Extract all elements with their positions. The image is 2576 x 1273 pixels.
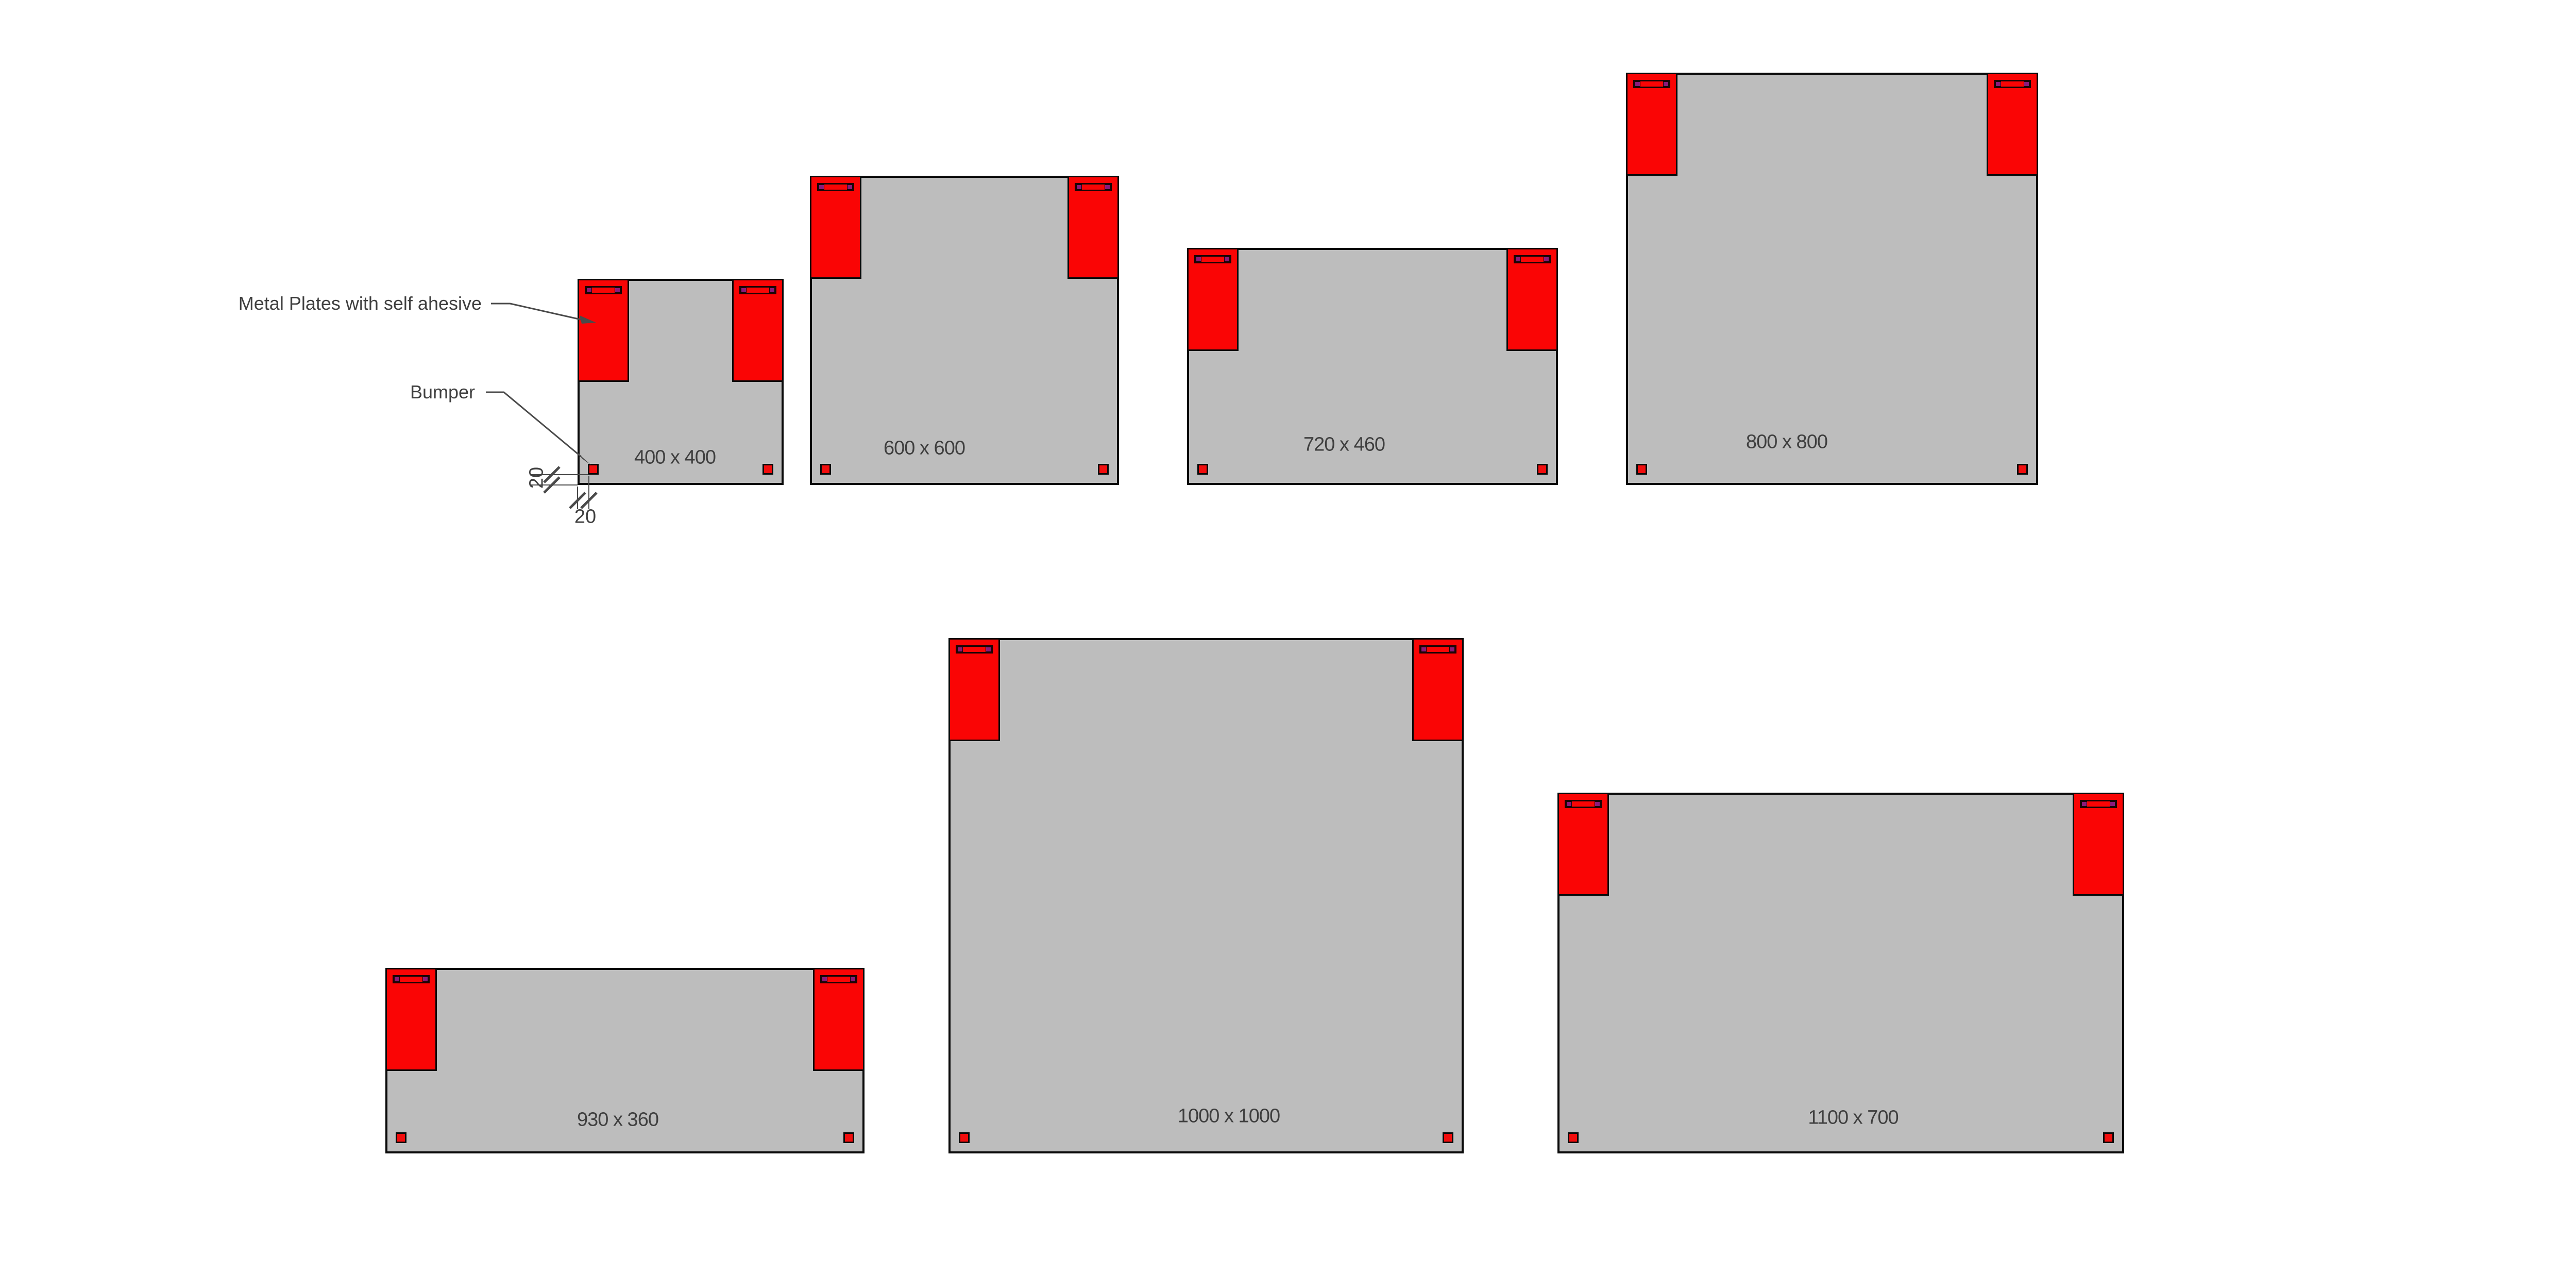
metal-plate-top-right (813, 968, 865, 1071)
slot-end-cap-right (2110, 801, 2115, 807)
plate-slot (820, 975, 857, 983)
panel-size-label: 1100 x 700 (1808, 1107, 1898, 1129)
slot-end-cap-right (986, 647, 991, 652)
slot-end-cap-left (1635, 81, 1640, 87)
slot-end-cap-left (1995, 81, 2001, 87)
metal-plates-leader-line (491, 304, 583, 320)
bumper-bottom-left (1568, 1132, 1579, 1143)
slot-end-cap-left (2081, 801, 2087, 807)
plate-slot (1514, 255, 1551, 263)
metal-plate-top-left (1626, 73, 1677, 176)
bumper-bottom-right (762, 464, 773, 475)
plate-slot (956, 645, 993, 654)
slot-end-cap-left (819, 185, 824, 190)
bumper-bottom-right (1443, 1132, 1453, 1143)
panel-size-label: 1000 x 1000 (1178, 1105, 1280, 1128)
plate-slot (1194, 255, 1231, 263)
slot-end-cap-right (847, 185, 853, 190)
slot-end-cap-right (422, 977, 428, 982)
bumper-bottom-left (396, 1132, 406, 1143)
bumper-bottom-left (1636, 464, 1647, 475)
slot-end-cap-left (586, 288, 592, 293)
plate-slot (1419, 645, 1456, 654)
slot-end-cap-right (1663, 81, 1669, 87)
panel-size-label: 800 x 800 (1746, 431, 1827, 454)
plate-slot (1075, 183, 1112, 191)
metal-plates-callout-label: Metal Plates with self ahesive (239, 293, 482, 314)
plate-slot (2080, 800, 2117, 808)
metal-plate-top-right (2073, 793, 2124, 896)
panel-size-label: 720 x 460 (1303, 434, 1385, 456)
metal-plate-top-left (1557, 793, 1609, 896)
slot-end-cap-left (741, 288, 747, 293)
slot-end-cap-left (1566, 801, 1572, 807)
plate-slot (1565, 800, 1602, 808)
slot-end-cap-left (394, 977, 400, 982)
panel-size-label: 600 x 600 (884, 438, 965, 460)
slot-end-cap-right (1105, 185, 1110, 190)
metal-plate-top-left (1187, 248, 1239, 351)
bumper-bottom-right (2017, 464, 2028, 475)
slot-end-cap-left (1515, 257, 1521, 262)
slot-end-cap-right (769, 288, 775, 293)
slot-end-cap-left (957, 647, 963, 652)
slot-end-cap-right (850, 977, 856, 982)
dim-label-bumper-left-offset: 20 (574, 506, 596, 528)
bumper-bottom-right (843, 1132, 854, 1143)
dim-label-bumper-bottom-offset: 20 (526, 467, 548, 489)
slot-end-cap-left (822, 977, 827, 982)
plate-slot (393, 975, 430, 983)
plate-slot (817, 183, 854, 191)
metal-plate-top-left (578, 279, 629, 382)
metal-plate-top-left (385, 968, 437, 1071)
metal-plate-top-right (1987, 73, 2038, 176)
slot-end-cap-left (1421, 647, 1427, 652)
slot-end-cap-right (1449, 647, 1455, 652)
slot-end-cap-right (1595, 801, 1600, 807)
slot-end-cap-right (2024, 81, 2029, 87)
slot-end-cap-right (1224, 257, 1230, 262)
bumper-callout-label: Bumper (410, 381, 475, 403)
panel-size-label: 930 x 360 (577, 1109, 658, 1131)
slot-end-cap-left (1196, 257, 1201, 262)
diagram-canvas: 400 x 400600 x 600720 x 460800 x 800930 … (0, 0, 2576, 1273)
metal-plate-top-left (948, 638, 1000, 741)
metal-plate-top-right (732, 279, 784, 382)
plate-slot (1633, 80, 1670, 88)
metal-plate-top-right (1412, 638, 1464, 741)
bumper-bottom-left (959, 1132, 970, 1143)
slot-end-cap-right (615, 288, 620, 293)
panel-1000x1000 (948, 638, 1464, 1153)
plate-slot (1994, 80, 2031, 88)
plate-slot (739, 286, 776, 294)
panel-size-label: 400 x 400 (634, 447, 716, 469)
bumper-bottom-left (588, 464, 599, 475)
metal-plate-top-right (1506, 248, 1558, 351)
slot-end-cap-left (1076, 185, 1082, 190)
bumper-bottom-right (1098, 464, 1109, 475)
slot-end-cap-right (1544, 257, 1549, 262)
bumper-bottom-left (820, 464, 831, 475)
bumper-leader-line (486, 392, 581, 457)
panel-800x800 (1626, 73, 2038, 485)
metal-plate-top-left (810, 176, 861, 279)
metal-plate-top-right (1067, 176, 1119, 279)
bumper-bottom-right (2103, 1132, 2114, 1143)
bumper-bottom-left (1197, 464, 1208, 475)
plate-slot (585, 286, 622, 294)
bumper-bottom-right (1537, 464, 1548, 475)
panel-1100x700 (1557, 793, 2124, 1153)
